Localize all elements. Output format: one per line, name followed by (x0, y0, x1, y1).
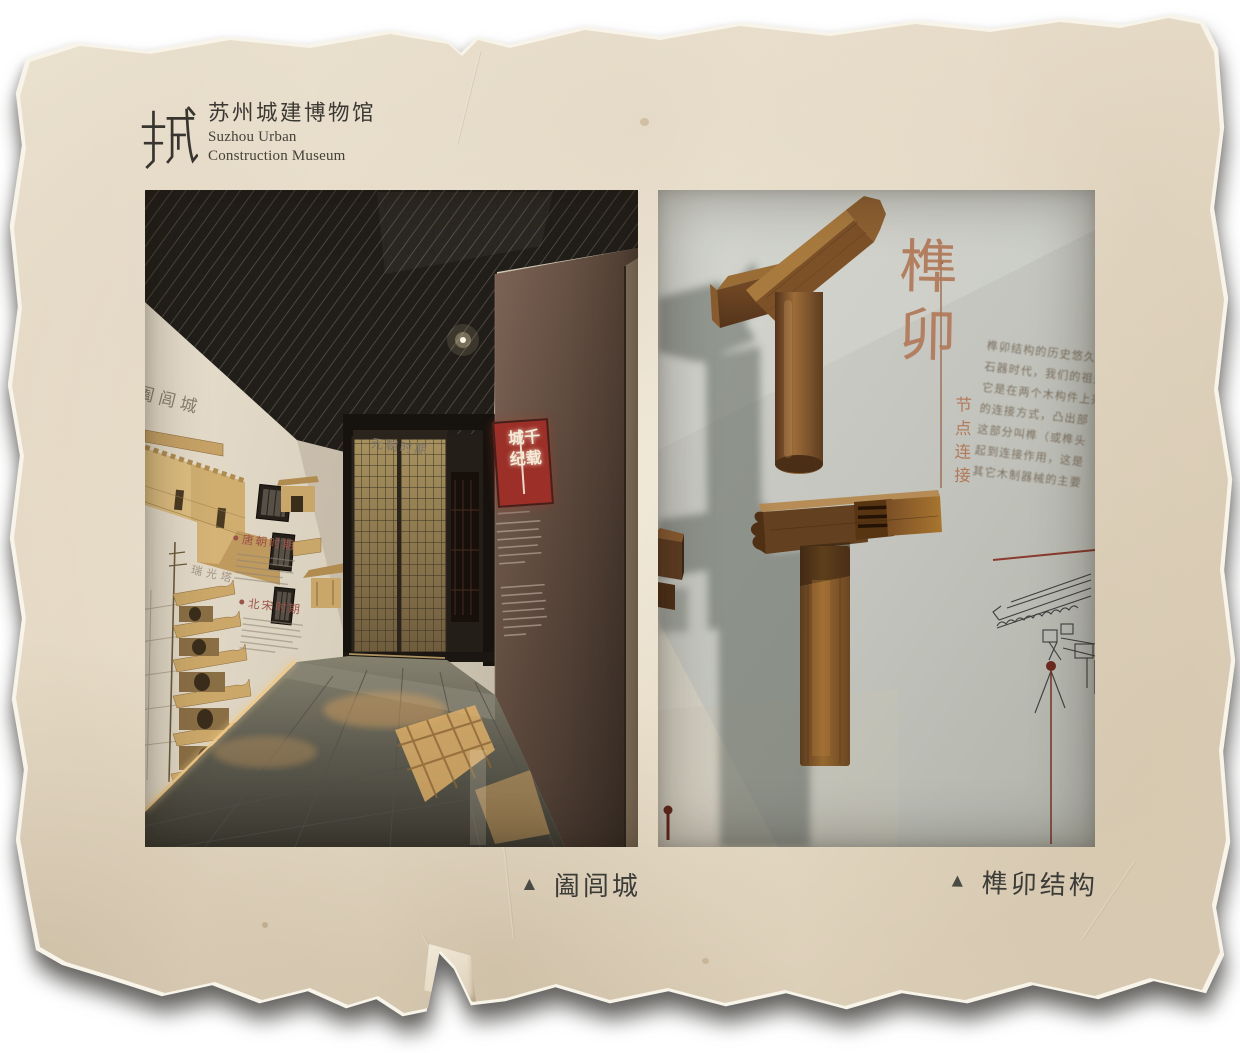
caption-right-label: 榫卯结构 (981, 863, 1098, 902)
right-photo-art (658, 190, 1095, 847)
bullet-dot-icon (239, 599, 245, 605)
left-photo-helv-city: 阖闾城 元朝时期 唐朝时期 北宋时期 瑞光塔 千载 城纪 (145, 190, 638, 847)
left-photo-art (145, 190, 638, 847)
vertical-title-sunmao: 榫卯 (879, 235, 965, 372)
bullet-dot-icon (233, 535, 239, 541)
paper: 城 苏州城建博物馆 Suzhou Urban (0, 0, 1240, 1053)
scanned-page: 城 苏州城建博物馆 Suzhou Urban (0, 0, 1240, 1053)
wall-paragraph: 榫卯结构的历史悠久，早 石器时代，我们的祖先 它是在两个木构件上采 的连接方式，… (971, 336, 1095, 497)
logo-subtitle-en-line2: Construction Museum (208, 147, 376, 166)
paper-stain (640, 118, 649, 126)
right-photo-mortise-tenon: 榫卯 节点连接 榫卯结构的历史悠久，早 石器时代，我们的祖先 它是在两个木构件上… (658, 190, 1095, 847)
paper-shadow-wrap: 城 苏州城建博物馆 Suzhou Urban (0, 0, 1240, 1053)
triangle-marker-icon: ▲ (948, 871, 967, 890)
paper-stain (262, 922, 268, 928)
paper-crease (503, 846, 515, 938)
caption-left-label: 阖闾城 (554, 866, 641, 903)
museum-logo: 城 苏州城建博物馆 Suzhou Urban (140, 98, 376, 172)
paper-crease (457, 51, 482, 144)
sign-column-left: 城纪 (501, 429, 528, 473)
caption-left: ▲ 阖闾城 (520, 866, 641, 903)
logo-subtitle-en-line1: Suzhou Urban (208, 128, 376, 147)
paper-tear-flap (424, 944, 476, 1002)
caption-right: ▲ 榫卯结构 (948, 862, 1099, 902)
logo-glyph-cheng-icon: 城 (140, 102, 198, 172)
logo-text: 苏州城建博物馆 Suzhou Urban Construction Museum (208, 98, 376, 166)
red-exhibit-sign: 千载 城纪 (492, 418, 554, 508)
vertical-subtitle-joint-connection: 节点连接 (948, 396, 974, 490)
paper-stain (702, 958, 709, 964)
logo-title-cn: 苏州城建博物馆 (208, 98, 376, 128)
triangle-marker-icon: ▲ (520, 875, 539, 894)
